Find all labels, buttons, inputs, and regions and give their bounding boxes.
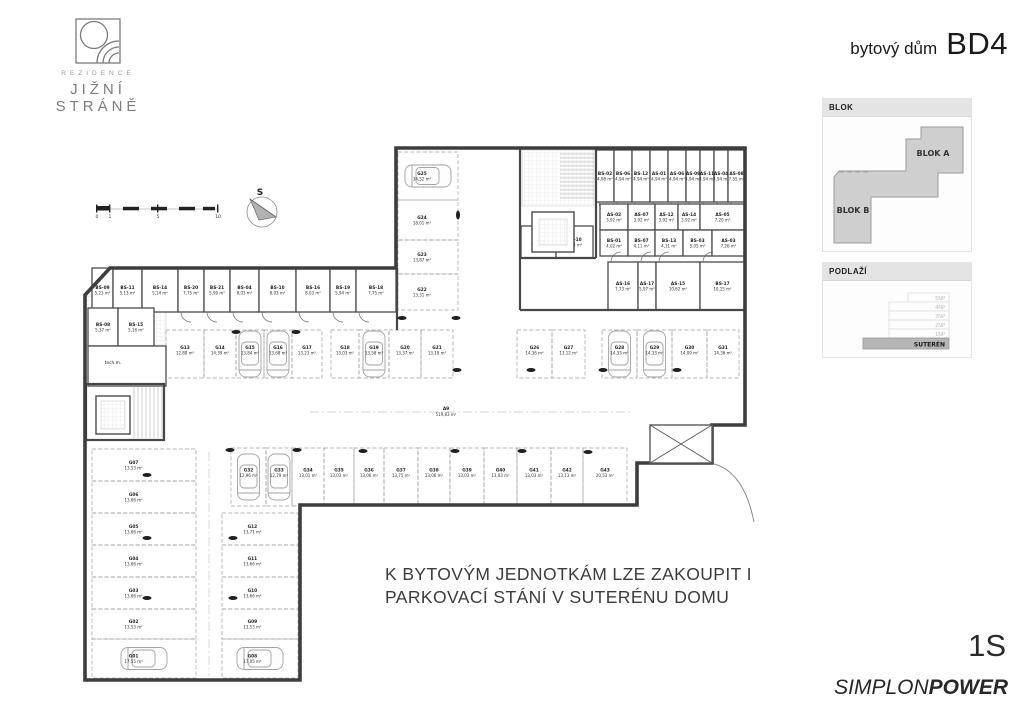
pillar: [452, 316, 461, 320]
pillar: [527, 368, 536, 372]
floor-label-5NP: 5NP: [935, 296, 945, 302]
parking-stall-G04: [92, 545, 196, 577]
svg-text:5,37 m²: 5,37 m²: [95, 328, 111, 333]
pillar: [359, 449, 368, 453]
floor-label-4NP: 4NP: [935, 305, 945, 311]
svg-text:13,66 m²: 13,66 m²: [124, 562, 143, 567]
blok-keyplan: BLOK A BLOK B: [823, 117, 969, 253]
north-arrow-icon: S: [247, 188, 277, 227]
pillar: [599, 368, 608, 372]
power-part: POWER: [929, 676, 1008, 699]
svg-text:8,03 m²: 8,03 m²: [270, 291, 286, 296]
blok-a-label: BLOK A: [917, 149, 951, 158]
podlazi-panel-body: 5NP4NP3NP2NP1NPSUTERÉN: [823, 281, 971, 364]
svg-text:13,53 m²: 13,53 m²: [124, 466, 143, 471]
pillar: [451, 449, 460, 453]
svg-text:5,13 m²: 5,13 m²: [120, 291, 136, 296]
pillar: [293, 448, 302, 452]
title-prefix: bytový dům: [850, 39, 937, 59]
svg-text:17,55 m²: 17,55 m²: [124, 659, 143, 664]
building-footprint: [834, 127, 963, 243]
floors-diagram: 5NP4NP3NP2NP1NPSUTERÉN: [823, 281, 969, 359]
scale-0: 0: [96, 214, 99, 220]
svg-text:5,23 m²: 5,23 m²: [95, 291, 111, 296]
svg-text:12,88 m²: 12,88 m²: [176, 351, 195, 356]
scale-5: 5: [157, 214, 160, 220]
svg-text:13,66 m²: 13,66 m²: [124, 498, 143, 503]
svg-text:8,03 m²: 8,03 m²: [237, 291, 253, 296]
pillar: [456, 211, 460, 220]
north-label: S: [257, 188, 263, 198]
podlazi-panel-title: PODLAŽÍ: [823, 263, 971, 281]
svg-text:4,94 m²: 4,94 m²: [713, 177, 729, 182]
svg-text:13,84 m²: 13,84 m²: [241, 351, 260, 356]
tech-room-label: tech.m.: [105, 360, 121, 366]
svg-text:12,79 m²: 12,79 m²: [270, 473, 289, 478]
blok-b-label: BLOK B: [837, 206, 870, 215]
aisle-area-label: A9 519,83 m²: [436, 406, 457, 417]
pillar: [292, 330, 301, 334]
parking-stall-G03: [92, 577, 196, 609]
parking-stall-G02: [92, 609, 196, 639]
svg-text:4,94 m²: 4,94 m²: [615, 177, 631, 182]
floor-label-3NP: 3NP: [935, 314, 945, 320]
svg-text:18,01 m²: 18,01 m²: [413, 221, 432, 226]
svg-text:4,02 m²: 4,02 m²: [606, 244, 622, 249]
svg-text:10,15 m²: 10,15 m²: [713, 287, 732, 292]
title-building-code: BD4: [946, 26, 1008, 62]
pillar: [453, 368, 462, 372]
pillar: [226, 448, 235, 452]
svg-text:13,66 m²: 13,66 m²: [124, 530, 143, 535]
svg-text:10,62 m²: 10,62 m²: [669, 287, 688, 292]
driveway-curve: [714, 464, 754, 522]
svg-text:4,98 m²: 4,98 m²: [597, 177, 613, 182]
svg-text:13,06 m²: 13,06 m²: [360, 473, 379, 478]
note-line2: PARKOVACÍ STÁNÍ V SUTERÉNU DOMU: [385, 586, 752, 609]
svg-text:13,31 m²: 13,31 m²: [413, 293, 432, 298]
svg-text:7,73 m²: 7,73 m²: [615, 287, 631, 292]
svg-text:17,05 m²: 17,05 m²: [243, 659, 262, 664]
tech-room: [88, 346, 166, 386]
blok-panel-body: BLOK A BLOK B: [823, 117, 971, 258]
svg-text:8,03 m²: 8,03 m²: [305, 291, 321, 296]
svg-text:13,53 m²: 13,53 m²: [243, 625, 262, 630]
floor-label-suteren: SUTERÉN: [914, 341, 945, 349]
floor-label-1NP: 1NP: [935, 332, 945, 338]
parking-stall-G06: [92, 481, 196, 513]
svg-text:13,53 m²: 13,53 m²: [124, 625, 143, 630]
scale-10: 10: [215, 214, 221, 220]
note-text: K BYTOVÝM JEDNOTKÁM LZE ZAKOUPIT I PARKO…: [385, 563, 752, 609]
svg-text:13,03 m²: 13,03 m²: [336, 351, 355, 356]
svg-text:12,96 m²: 12,96 m²: [239, 473, 258, 478]
svg-text:13,01 m²: 13,01 m²: [299, 473, 318, 478]
svg-text:13,66 m²: 13,66 m²: [243, 594, 262, 599]
svg-text:13,75 m²: 13,75 m²: [392, 473, 411, 478]
svg-text:13,58 m²: 13,58 m²: [365, 351, 384, 356]
entrance-ramp: [650, 425, 754, 522]
svg-text:13,12 m²: 13,12 m²: [559, 351, 578, 356]
svg-text:4,11 m²: 4,11 m²: [634, 244, 650, 249]
simplon-part: SIMPLON: [834, 676, 929, 699]
svg-text:7,55 m²: 7,55 m²: [729, 177, 745, 182]
blok-panel: BLOK BLOK A BLOK B: [822, 98, 972, 252]
svg-text:34,52 m²: 34,52 m²: [413, 177, 432, 182]
svg-text:7,75 m²: 7,75 m²: [183, 291, 199, 296]
pillar: [518, 449, 527, 453]
pillar: [232, 330, 241, 334]
svg-text:4,94 m²: 4,94 m²: [651, 177, 667, 182]
pillar: [143, 536, 152, 540]
svg-text:20,53 m²: 20,53 m²: [596, 473, 615, 478]
floor-label-2NP: 2NP: [935, 323, 945, 329]
svg-text:13,23 m²: 13,23 m²: [298, 351, 317, 356]
svg-text:13,71 m²: 13,71 m²: [243, 530, 262, 535]
svg-text:13,03 m²: 13,03 m²: [525, 473, 544, 478]
svg-text:5,97 m²: 5,97 m²: [639, 287, 655, 292]
svg-text:7,20 m²: 7,20 m²: [715, 218, 731, 223]
svg-text:13,03 m²: 13,03 m²: [330, 473, 349, 478]
svg-text:13,66 m²: 13,66 m²: [243, 562, 262, 567]
svg-text:3,92 m²: 3,92 m²: [659, 218, 675, 223]
pillar: [398, 316, 407, 320]
svg-text:13,87 m²: 13,87 m²: [413, 258, 432, 263]
svg-text:13,68 m²: 13,68 m²: [269, 351, 288, 356]
svg-text:519,83 m²: 519,83 m²: [436, 412, 457, 417]
svg-text:14,33 m²: 14,33 m²: [610, 351, 629, 356]
svg-text:3,92 m²: 3,92 m²: [681, 218, 697, 223]
svg-text:13,66 m²: 13,66 m²: [124, 594, 143, 599]
svg-text:7,75 m²: 7,75 m²: [368, 291, 384, 296]
svg-text:5,05 m²: 5,05 m²: [690, 244, 706, 249]
simplonpower-logo: SIMPLONPOWER: [834, 676, 1008, 700]
svg-text:14,33 m²: 14,33 m²: [645, 351, 664, 356]
scale-1: 1: [109, 214, 112, 220]
pillar: [584, 450, 593, 454]
parking-stall-G05: [92, 513, 196, 545]
svg-text:5,14 m²: 5,14 m²: [152, 291, 168, 296]
note-line1: K BYTOVÝM JEDNOTKÁM LZE ZAKOUPIT I: [385, 563, 752, 586]
svg-text:13,03 m²: 13,03 m²: [491, 473, 510, 478]
pillar: [143, 473, 152, 477]
svg-text:4,94 m²: 4,94 m²: [633, 177, 649, 182]
svg-text:13,03 m²: 13,03 m²: [458, 473, 477, 478]
podlazi-panel: PODLAŽÍ 5NP4NP3NP2NP1NPSUTERÉN: [822, 262, 972, 358]
pillar: [673, 368, 682, 372]
pillar: [229, 596, 238, 600]
svg-text:13,18 m²: 13,18 m²: [428, 351, 447, 356]
svg-text:5,94 m²: 5,94 m²: [335, 291, 351, 296]
aisle-guides: [209, 412, 630, 676]
svg-text:4,11 m²: 4,11 m²: [661, 244, 677, 249]
svg-text:5,99 m²: 5,99 m²: [209, 291, 225, 296]
west-stair-core: [86, 384, 164, 440]
svg-text:3,92 m²: 3,92 m²: [634, 218, 650, 223]
svg-text:5,16 m²: 5,16 m²: [128, 328, 144, 333]
svg-text:14,36 m²: 14,36 m²: [714, 351, 733, 356]
pillar: [143, 596, 152, 600]
svg-text:7,26 m²: 7,26 m²: [721, 244, 737, 249]
svg-text:13,06 m²: 13,06 m²: [425, 473, 444, 478]
svg-text:14,39 m²: 14,39 m²: [211, 351, 230, 356]
svg-text:13,13 m²: 13,13 m²: [558, 473, 577, 478]
svg-text:3,92 m²: 3,92 m²: [606, 218, 622, 223]
pillar: [229, 536, 238, 540]
svg-text:13,37 m²: 13,37 m²: [396, 351, 415, 356]
svg-text:14,09 m²: 14,09 m²: [680, 351, 699, 356]
drawing-title: bytový dům BD4: [850, 26, 1008, 62]
scale-bar: 0 1 5 10: [96, 205, 221, 221]
blok-panel-title: BLOK: [823, 99, 971, 117]
svg-text:4,94 m²: 4,94 m²: [669, 177, 685, 182]
svg-text:14,36 m²: 14,36 m²: [525, 351, 544, 356]
floor-plan: 0 1 5 10 S BS-095,23 m²BS-115,13 m²BS-14…: [0, 0, 820, 724]
floor-code: 1S: [968, 628, 1006, 664]
